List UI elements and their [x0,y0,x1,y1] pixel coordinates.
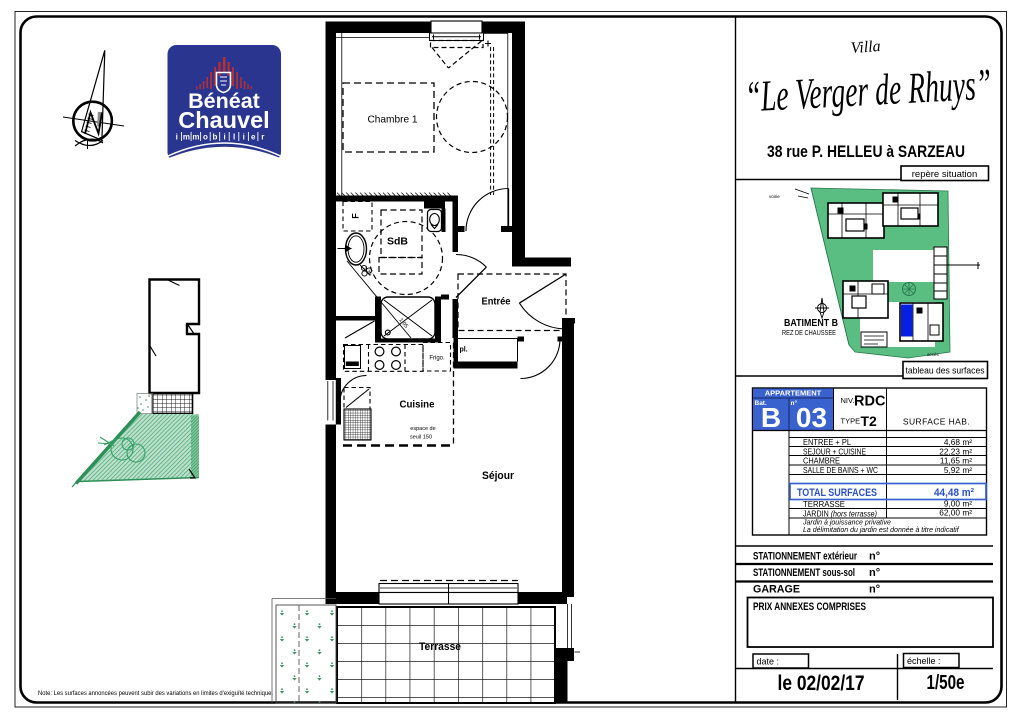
svg-text:BATIMENT B: BATIMENT B [784,318,838,329]
svg-text:Chambre 1: Chambre 1 [368,114,418,126]
svg-text:e: e [251,133,256,142]
svg-text:TERRASSE: TERRASSE [803,499,845,509]
svg-text:échelle :: échelle : [907,656,941,666]
svg-text:le 02/02/17: le 02/02/17 [778,672,865,695]
svg-text:b: b [213,133,218,142]
svg-text:accès: accès [927,352,940,357]
svg-text:Chauvel: Chauvel [178,107,269,133]
svg-text:44,48 m²: 44,48 m² [934,487,974,499]
svg-text:Note: Les surfaces annoncées p: Note: Les surfaces annoncées peuvent sub… [38,690,273,697]
svg-text:repère situation: repère situation [912,169,977,180]
svg-text:Villa: Villa [850,38,881,57]
svg-text:38 rue P. HELLEU à SARZEAU: 38 rue P. HELLEU à SARZEAU [767,142,965,161]
svg-text:m: m [183,133,190,142]
svg-text:F: F [350,213,360,219]
svg-text:espace de: espace de [410,426,435,432]
svg-text:Frigo.: Frigo. [429,356,445,362]
svg-text:tableau des surfaces: tableau des surfaces [906,366,985,377]
svg-text:03: 03 [796,402,827,433]
svg-text:m: m [192,133,199,142]
svg-text:NIV.: NIV. [841,396,855,405]
svg-text:62,00 m²: 62,00 m² [939,508,972,518]
svg-text:STATIONNEMENT extérieur: STATIONNEMENT extérieur [753,551,858,563]
svg-text:l: l [233,133,235,142]
svg-text:Jardin à jouissance privative: Jardin à jouissance privative [802,520,891,527]
svg-text:CHAMBRE: CHAMBRE [803,456,840,466]
svg-text:n°: n° [869,567,880,579]
svg-text:B: B [761,402,781,433]
svg-text:APPARTEMENT: APPARTEMENT [765,389,822,398]
svg-text:Cuisine: Cuisine [400,399,435,411]
svg-text:5,92 m²: 5,92 m² [944,465,972,475]
svg-text:SALLE DE BAINS + WC: SALLE DE BAINS + WC [803,465,878,475]
svg-text:1/50e: 1/50e [927,672,965,694]
svg-text:voirie: voirie [769,194,780,199]
svg-text:RDC: RDC [854,394,886,410]
svg-text:Entrée: Entrée [482,296,511,308]
svg-text:La délimitation du jardin est: La délimitation du jardin est donnée à t… [803,527,960,534]
svg-text:ENTREE + PL: ENTREE + PL [803,437,851,447]
svg-text:n°: n° [869,551,880,563]
svg-text:i: i [223,133,225,142]
svg-text:TOTAL SURFACES: TOTAL SURFACES [797,487,877,499]
svg-text:Séjour: Séjour [482,470,515,482]
svg-text:r: r [261,133,264,142]
svg-text:4,68 m²: 4,68 m² [944,437,972,447]
svg-text:i: i [176,133,178,142]
svg-text:date :: date : [757,657,780,667]
svg-text:n°: n° [869,584,880,596]
svg-text:PRIX ANNEXES COMPRISES: PRIX ANNEXES COMPRISES [753,601,866,613]
svg-text:T2: T2 [861,413,878,429]
svg-text:11,65 m²: 11,65 m² [940,456,972,466]
svg-text:Terrasse: Terrasse [419,641,461,653]
svg-text:STATIONNEMENT sous-sol: STATIONNEMENT sous-sol [753,567,855,579]
svg-text:i: i [243,133,245,142]
svg-text:o: o [203,133,208,142]
svg-text:SURFACE HAB.: SURFACE HAB. [903,417,970,427]
svg-text:seuil 150: seuil 150 [410,435,432,441]
svg-text:SdB: SdB [387,236,408,248]
svg-text:JARDIN (hors terrasse): JARDIN (hors terrasse) [803,509,877,519]
svg-text:pl.: pl. [460,347,468,354]
svg-text:REZ DE CHAUSSEE: REZ DE CHAUSSEE [782,330,836,337]
svg-text:TYPE: TYPE [841,417,861,426]
svg-text:GARAGE: GARAGE [753,584,800,596]
